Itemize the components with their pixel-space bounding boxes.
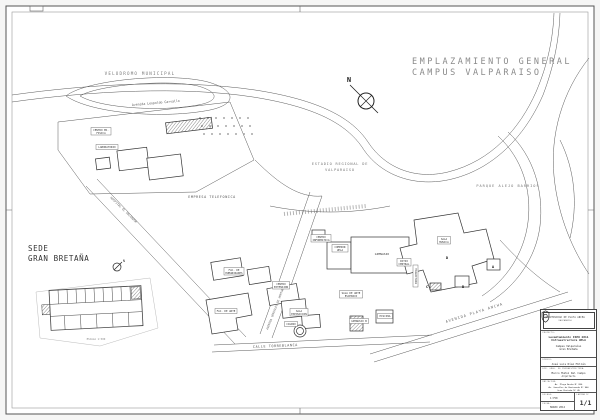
svg-text:CENTRAL: CENTRAL	[399, 262, 410, 266]
svg-text:EXTENSION: EXTENSION	[274, 285, 288, 289]
university-sub: VALPARAISO	[546, 320, 585, 322]
building-label: SALAEXPOSICION	[290, 309, 308, 317]
project-line4: Gran Bretaña	[541, 348, 596, 351]
drawn-by-row: DIBUJO: José Luis Díaz Millán	[541, 358, 596, 367]
svg-text:ESCENICO: ESCENICO	[345, 294, 358, 298]
title-block-logo-row: UNIVERSIDAD DE PLAYA ANCHA VALPARAISO	[541, 310, 596, 331]
drawn-by-value: José Luis Díaz Millán	[541, 362, 596, 366]
building-label: GIMNASIO	[375, 252, 390, 256]
drawn-by-label: DIBUJO:	[543, 359, 553, 361]
estadio-label-line2: VALPARAISO	[325, 168, 355, 172]
north-label: N	[347, 76, 351, 84]
building-label: CASINO	[285, 322, 298, 327]
building-label: PISCINA	[378, 314, 393, 319]
director-role: Arquitecto	[541, 375, 596, 378]
building-label: GIMNASIO B	[350, 319, 369, 324]
svg-text:FISICA: FISICA	[96, 131, 106, 135]
building-label: FAC. DEHUMANIDADES	[224, 268, 244, 276]
building-label: CENTRO ED.FISICA	[91, 128, 111, 136]
svg-text:INFORMATICA: INFORMATICA	[312, 238, 330, 242]
drawing-sheet: N N ESCALA 1:500 EMPLAZAMIENTO GENERAL C…	[0, 0, 600, 420]
svg-text:EXPOSICION: EXPOSICION	[291, 312, 307, 316]
university-shield-icon	[541, 310, 550, 323]
sheet-number-value: 1/1	[575, 399, 596, 407]
project-row: PROYECTO: Levantamiento ISEO 2011 Infrae…	[541, 331, 596, 358]
svg-text:CASINO: CASINO	[286, 322, 296, 326]
title-block: UNIVERSIDAD DE PLAYA ANCHA VALPARAISO PR…	[540, 309, 597, 411]
project-label: PROYECTO:	[543, 332, 556, 334]
velodromo-label: VELODROMO MUNICIPAL	[105, 71, 176, 76]
svg-text:UPLA: UPLA	[337, 248, 344, 252]
university-name: UNIVERSIDAD DE PLAYA ANCHA	[546, 316, 585, 319]
inset-heading-line2: GRAN BRETAÑA	[28, 254, 89, 263]
estadio-label-line1: ESTADIO REGIONAL DE	[312, 162, 368, 166]
director-label: DIR. GRAL. DE INFRAESTRUCTURA:	[543, 368, 585, 371]
building-label: SALAMUSICA	[438, 237, 451, 245]
building-label: BIBLIOTECA	[413, 265, 418, 287]
building-mark: C	[426, 284, 428, 289]
svg-text:BIBLIOTECA: BIBLIOTECA	[414, 268, 418, 284]
svg-text:GIMNASIO B: GIMNASIO B	[351, 319, 367, 323]
svg-text:FAC. DE ARTE: FAC. DE ARTE	[217, 309, 236, 313]
inset-caption: ESCALA 1:500	[87, 337, 106, 341]
inset-heading-line1: SEDE	[28, 244, 48, 253]
building-label: SALA DE ARTEESCENICO	[340, 291, 363, 299]
building-label: PATIOCENTRAL	[397, 259, 411, 267]
page-title-line1: EMPLAZAMIENTO GENERAL	[412, 57, 572, 67]
location-label: UBICACION:	[543, 381, 557, 384]
sheet-number-cell: LAMINA N° 1/1	[575, 393, 596, 411]
building-label: CENTROINFORMATICA	[311, 235, 331, 243]
empresa-label: EMPRESA TELEFONICA	[188, 195, 236, 199]
date-cell: FECHA: MARZO 2012	[541, 402, 574, 411]
building-label: CENTROEXTENSION	[273, 282, 290, 290]
director-row: DIR. GRAL. DE INFRAESTRUCTURA: Marco Muñ…	[541, 367, 596, 380]
sheet-number-label: LAMINA N°	[577, 394, 590, 396]
project-line2: Infraestructura UPLA	[541, 339, 596, 343]
scale-value: 1:750	[550, 397, 558, 400]
page-title-line2: CAMPUS VALPARAISO	[412, 68, 542, 78]
scale-sheet-row: ESCALA: 1:750 FECHA: MARZO 2012 LAMINA N…	[541, 393, 596, 411]
building-label: LABORATORIO	[96, 145, 118, 150]
building-label: COMEDORUPLA	[332, 245, 348, 253]
location-row: UBICACION: Av. Playa Ancha N° 850 Av. Go…	[541, 380, 596, 393]
parque-label: PARQUE ALEJO BARRIOS	[476, 184, 539, 188]
svg-text:PISCINA: PISCINA	[380, 314, 391, 318]
inset-north-label: N	[123, 259, 125, 263]
scale-cell: ESCALA: 1:750	[541, 393, 574, 402]
building-label: FAC. DE ARTE	[215, 309, 237, 314]
site-plan-drawing: N N ESCALA 1:500 EMPLAZAMIENTO GENERAL C…	[0, 0, 600, 420]
svg-text:MUSICA: MUSICA	[439, 240, 449, 244]
svg-text:HUMANIDADES: HUMANIDADES	[225, 271, 243, 275]
date-value: MARZO 2012	[550, 406, 565, 409]
svg-text:LABORATORIO: LABORATORIO	[98, 145, 116, 149]
